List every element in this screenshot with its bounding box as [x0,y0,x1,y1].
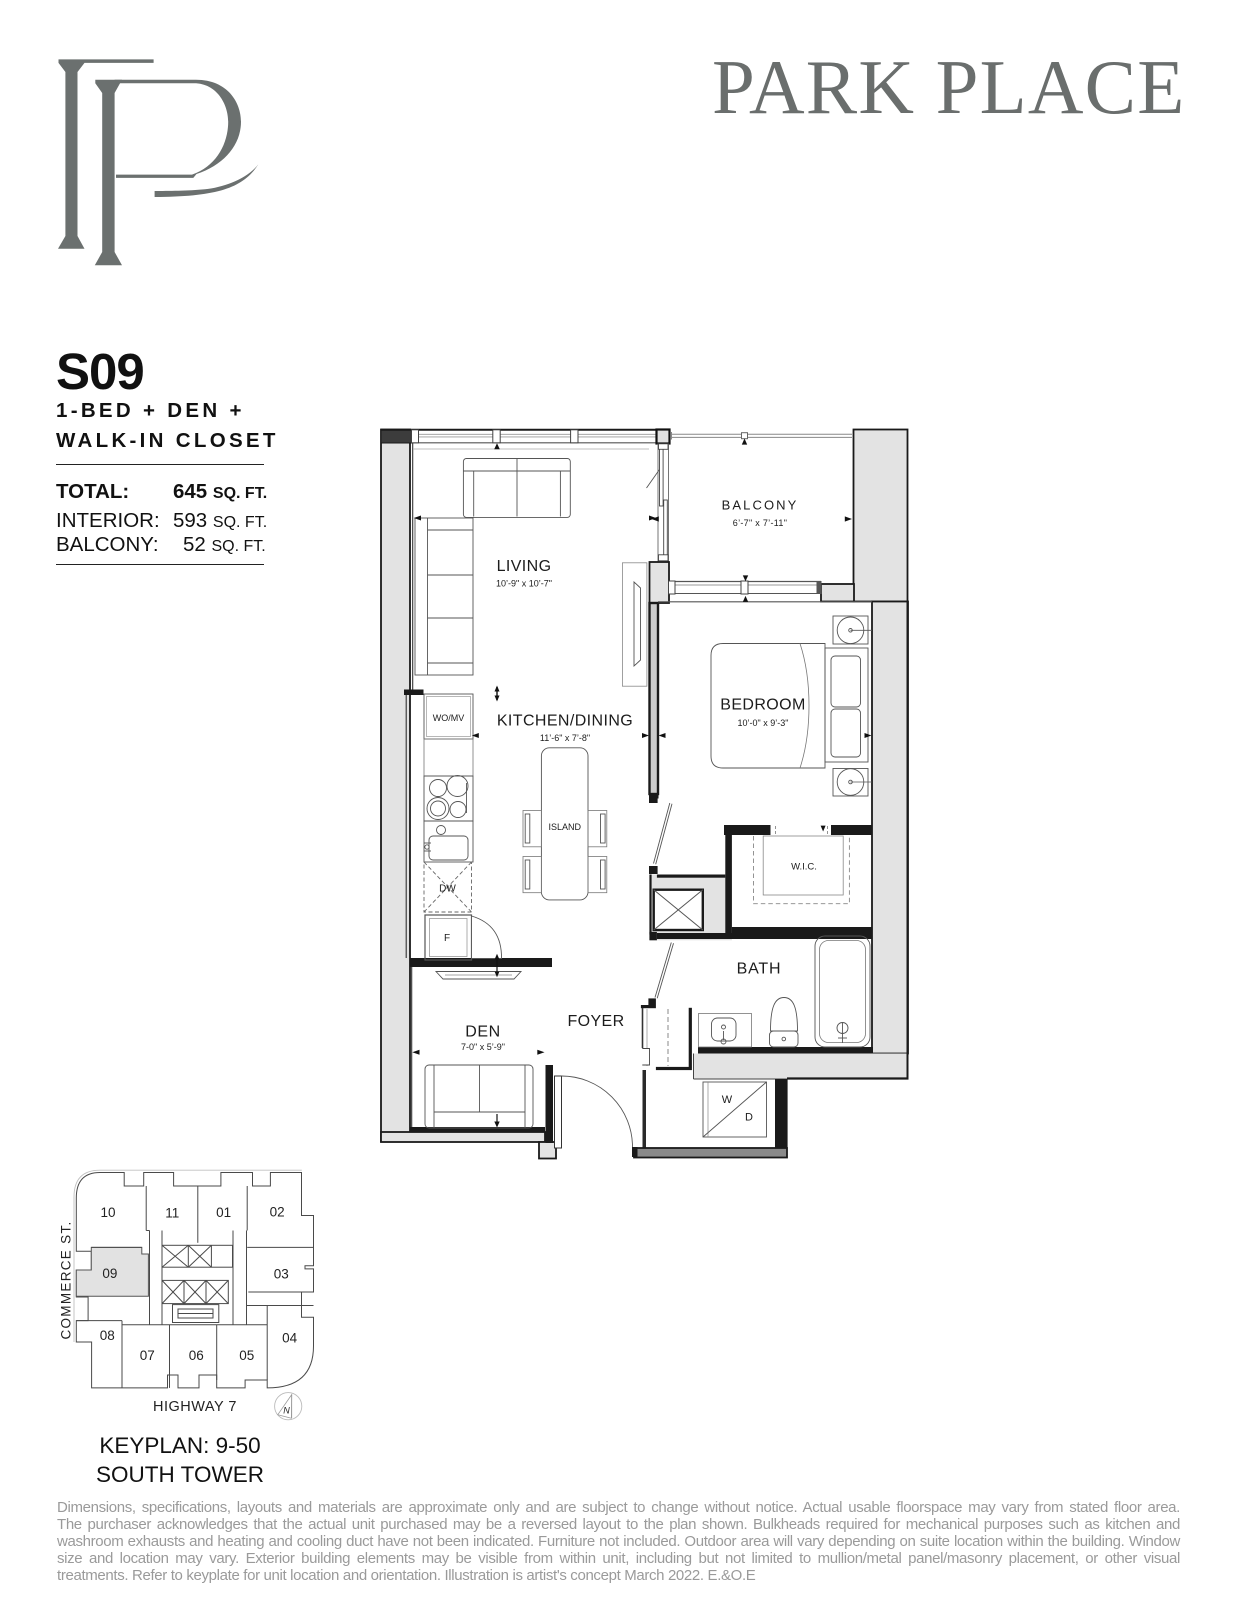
svg-text:10’-0" x 9’-3": 10’-0" x 9’-3" [738,718,789,728]
svg-text:WO/MV: WO/MV [433,713,465,723]
svg-text:02: 02 [270,1205,285,1220]
svg-text:06: 06 [189,1348,204,1363]
svg-text:01: 01 [216,1205,231,1220]
svg-text:FOYER: FOYER [567,1013,624,1030]
svg-text:D: D [745,1112,753,1124]
svg-text:08: 08 [100,1328,115,1343]
svg-text:KITCHEN/DINING: KITCHEN/DINING [497,713,633,730]
svg-text:7-0" x 5’-9": 7-0" x 5’-9" [461,1042,505,1052]
svg-text:DW: DW [439,884,456,895]
svg-text:F: F [444,933,450,944]
svg-text:HIGHWAY 7: HIGHWAY 7 [153,1399,237,1415]
svg-text:04: 04 [282,1331,298,1346]
svg-text:BEDROOM: BEDROOM [720,697,805,714]
svg-text:11: 11 [165,1206,179,1221]
svg-text:PARK PLACE: PARK PLACE [712,44,1185,130]
svg-text:10’-9" x 10’-7": 10’-9" x 10’-7" [496,579,552,589]
svg-text:03: 03 [274,1267,289,1282]
svg-text:N: N [283,1406,290,1416]
svg-text:11’-6" x 7’-8": 11’-6" x 7’-8" [540,733,590,743]
svg-text:LIVING: LIVING [497,558,552,575]
svg-text:W: W [722,1094,733,1106]
svg-text:BALCONY: BALCONY [722,498,799,513]
svg-text:09: 09 [102,1266,117,1281]
svg-text:DEN: DEN [465,1024,501,1041]
svg-text:05: 05 [239,1348,254,1363]
svg-text:COMMERCE ST.: COMMERCE ST. [59,1220,74,1339]
svg-text:6’-7" x 7’-11": 6’-7" x 7’-11" [733,518,787,528]
svg-text:W.I.C.: W.I.C. [791,862,817,873]
svg-text:BATH: BATH [737,961,782,978]
svg-text:10: 10 [100,1205,115,1220]
svg-text:ISLAND: ISLAND [548,822,581,832]
svg-text:07: 07 [140,1348,155,1363]
